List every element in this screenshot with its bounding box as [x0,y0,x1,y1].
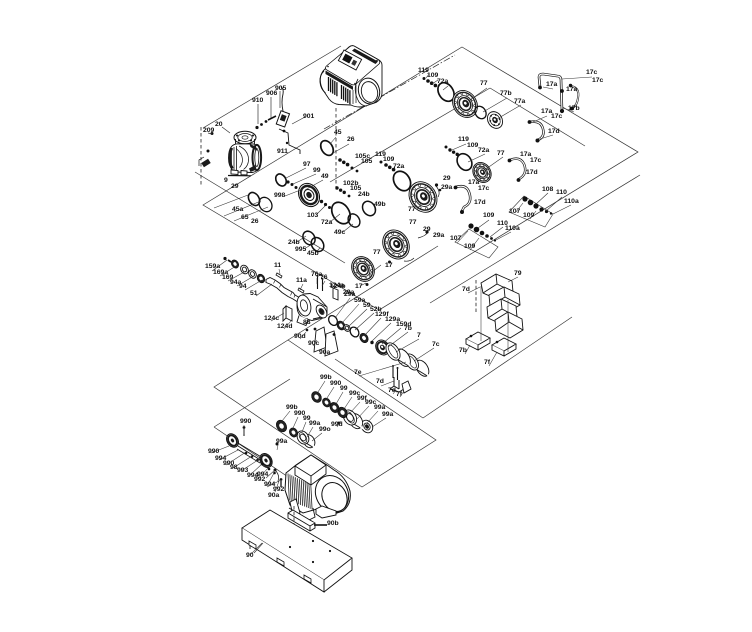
svg-text:24b: 24b [288,239,300,246]
svg-text:17a: 17a [566,86,578,93]
svg-text:7c: 7c [432,341,440,348]
svg-text:901: 901 [303,113,315,120]
svg-text:29: 29 [423,226,431,233]
svg-text:24b: 24b [358,191,370,198]
svg-text:910: 910 [252,97,264,104]
svg-text:49c: 49c [334,229,346,236]
svg-text:99a: 99a [276,438,288,445]
svg-text:105: 105 [350,185,362,192]
svg-text:90a: 90a [319,349,331,356]
svg-text:29: 29 [443,175,451,182]
svg-text:110a: 110a [564,198,579,205]
svg-text:26: 26 [347,136,355,143]
svg-text:905: 905 [275,85,287,92]
svg-text:124d: 124d [277,323,293,330]
svg-text:20: 20 [215,121,223,128]
svg-text:911: 911 [277,148,288,155]
svg-text:17c: 17c [592,77,604,84]
svg-text:7b: 7b [404,325,412,332]
svg-text:17b: 17b [568,105,580,112]
svg-text:99o: 99o [319,426,331,433]
svg-text:77: 77 [480,80,488,87]
svg-text:99d: 99d [331,421,343,428]
svg-text:17d: 17d [526,169,538,176]
svg-text:72a: 72a [478,147,490,154]
svg-text:99: 99 [313,167,321,174]
svg-text:26: 26 [251,218,259,225]
svg-text:77a: 77a [514,98,526,105]
svg-text:77: 77 [409,219,417,226]
svg-text:110a: 110a [505,225,520,232]
svg-text:90b: 90b [327,520,339,527]
svg-text:998: 998 [274,192,286,199]
svg-text:99a: 99a [374,404,386,411]
svg-text:90a: 90a [268,492,280,499]
svg-text:77: 77 [373,249,381,256]
svg-text:7d: 7d [376,378,384,385]
svg-text:11: 11 [274,262,281,269]
svg-text:17c: 17c [551,113,563,120]
svg-text:29: 29 [231,183,239,190]
svg-text:99: 99 [340,385,348,392]
svg-text:72a: 72a [321,219,333,226]
svg-text:107: 107 [509,208,521,215]
svg-text:17d: 17d [548,128,560,135]
svg-text:90: 90 [246,552,254,559]
svg-text:29a: 29a [433,232,445,239]
svg-text:77: 77 [408,206,416,213]
svg-text:17d: 17d [474,199,486,206]
svg-text:990: 990 [208,448,220,455]
svg-text:107: 107 [450,235,462,242]
svg-text:7d: 7d [462,286,470,293]
svg-text:124b: 124b [330,283,346,290]
svg-text:7d: 7d [388,387,396,394]
svg-text:17: 17 [385,262,393,269]
svg-text:7e: 7e [354,369,362,376]
svg-text:108: 108 [542,186,554,193]
svg-text:109: 109 [383,156,395,163]
svg-text:7: 7 [417,332,421,339]
svg-text:77: 77 [497,150,505,157]
svg-text:990: 990 [240,418,252,425]
svg-text:17: 17 [355,283,363,290]
svg-text:109: 109 [483,212,495,219]
svg-text:109: 109 [464,243,476,250]
svg-text:97: 97 [303,161,311,168]
svg-text:209: 209 [203,127,215,134]
svg-text:9: 9 [224,177,228,184]
svg-text:49b: 49b [374,201,386,208]
svg-text:109: 109 [467,142,479,149]
svg-text:995: 995 [295,246,307,253]
svg-text:99a: 99a [382,411,394,418]
svg-text:17c: 17c [586,69,598,76]
svg-text:49: 49 [321,173,329,180]
svg-text:72a: 72a [437,78,449,85]
svg-text:124c: 124c [264,315,279,322]
svg-text:72a: 72a [393,163,405,170]
svg-text:90c: 90c [308,340,320,347]
svg-text:77b: 77b [500,90,512,97]
svg-text:11a: 11a [296,277,307,284]
svg-text:17c: 17c [478,185,490,192]
svg-text:79: 79 [514,270,522,277]
svg-text:17a: 17a [546,81,558,88]
svg-text:45: 45 [334,129,342,136]
svg-text:29a: 29a [441,184,453,191]
svg-text:103: 103 [307,212,319,219]
svg-text:110: 110 [556,189,567,196]
svg-text:51: 51 [250,290,258,297]
svg-text:17c: 17c [530,157,542,164]
svg-text:76: 76 [320,274,328,281]
svg-text:105: 105 [361,158,373,165]
